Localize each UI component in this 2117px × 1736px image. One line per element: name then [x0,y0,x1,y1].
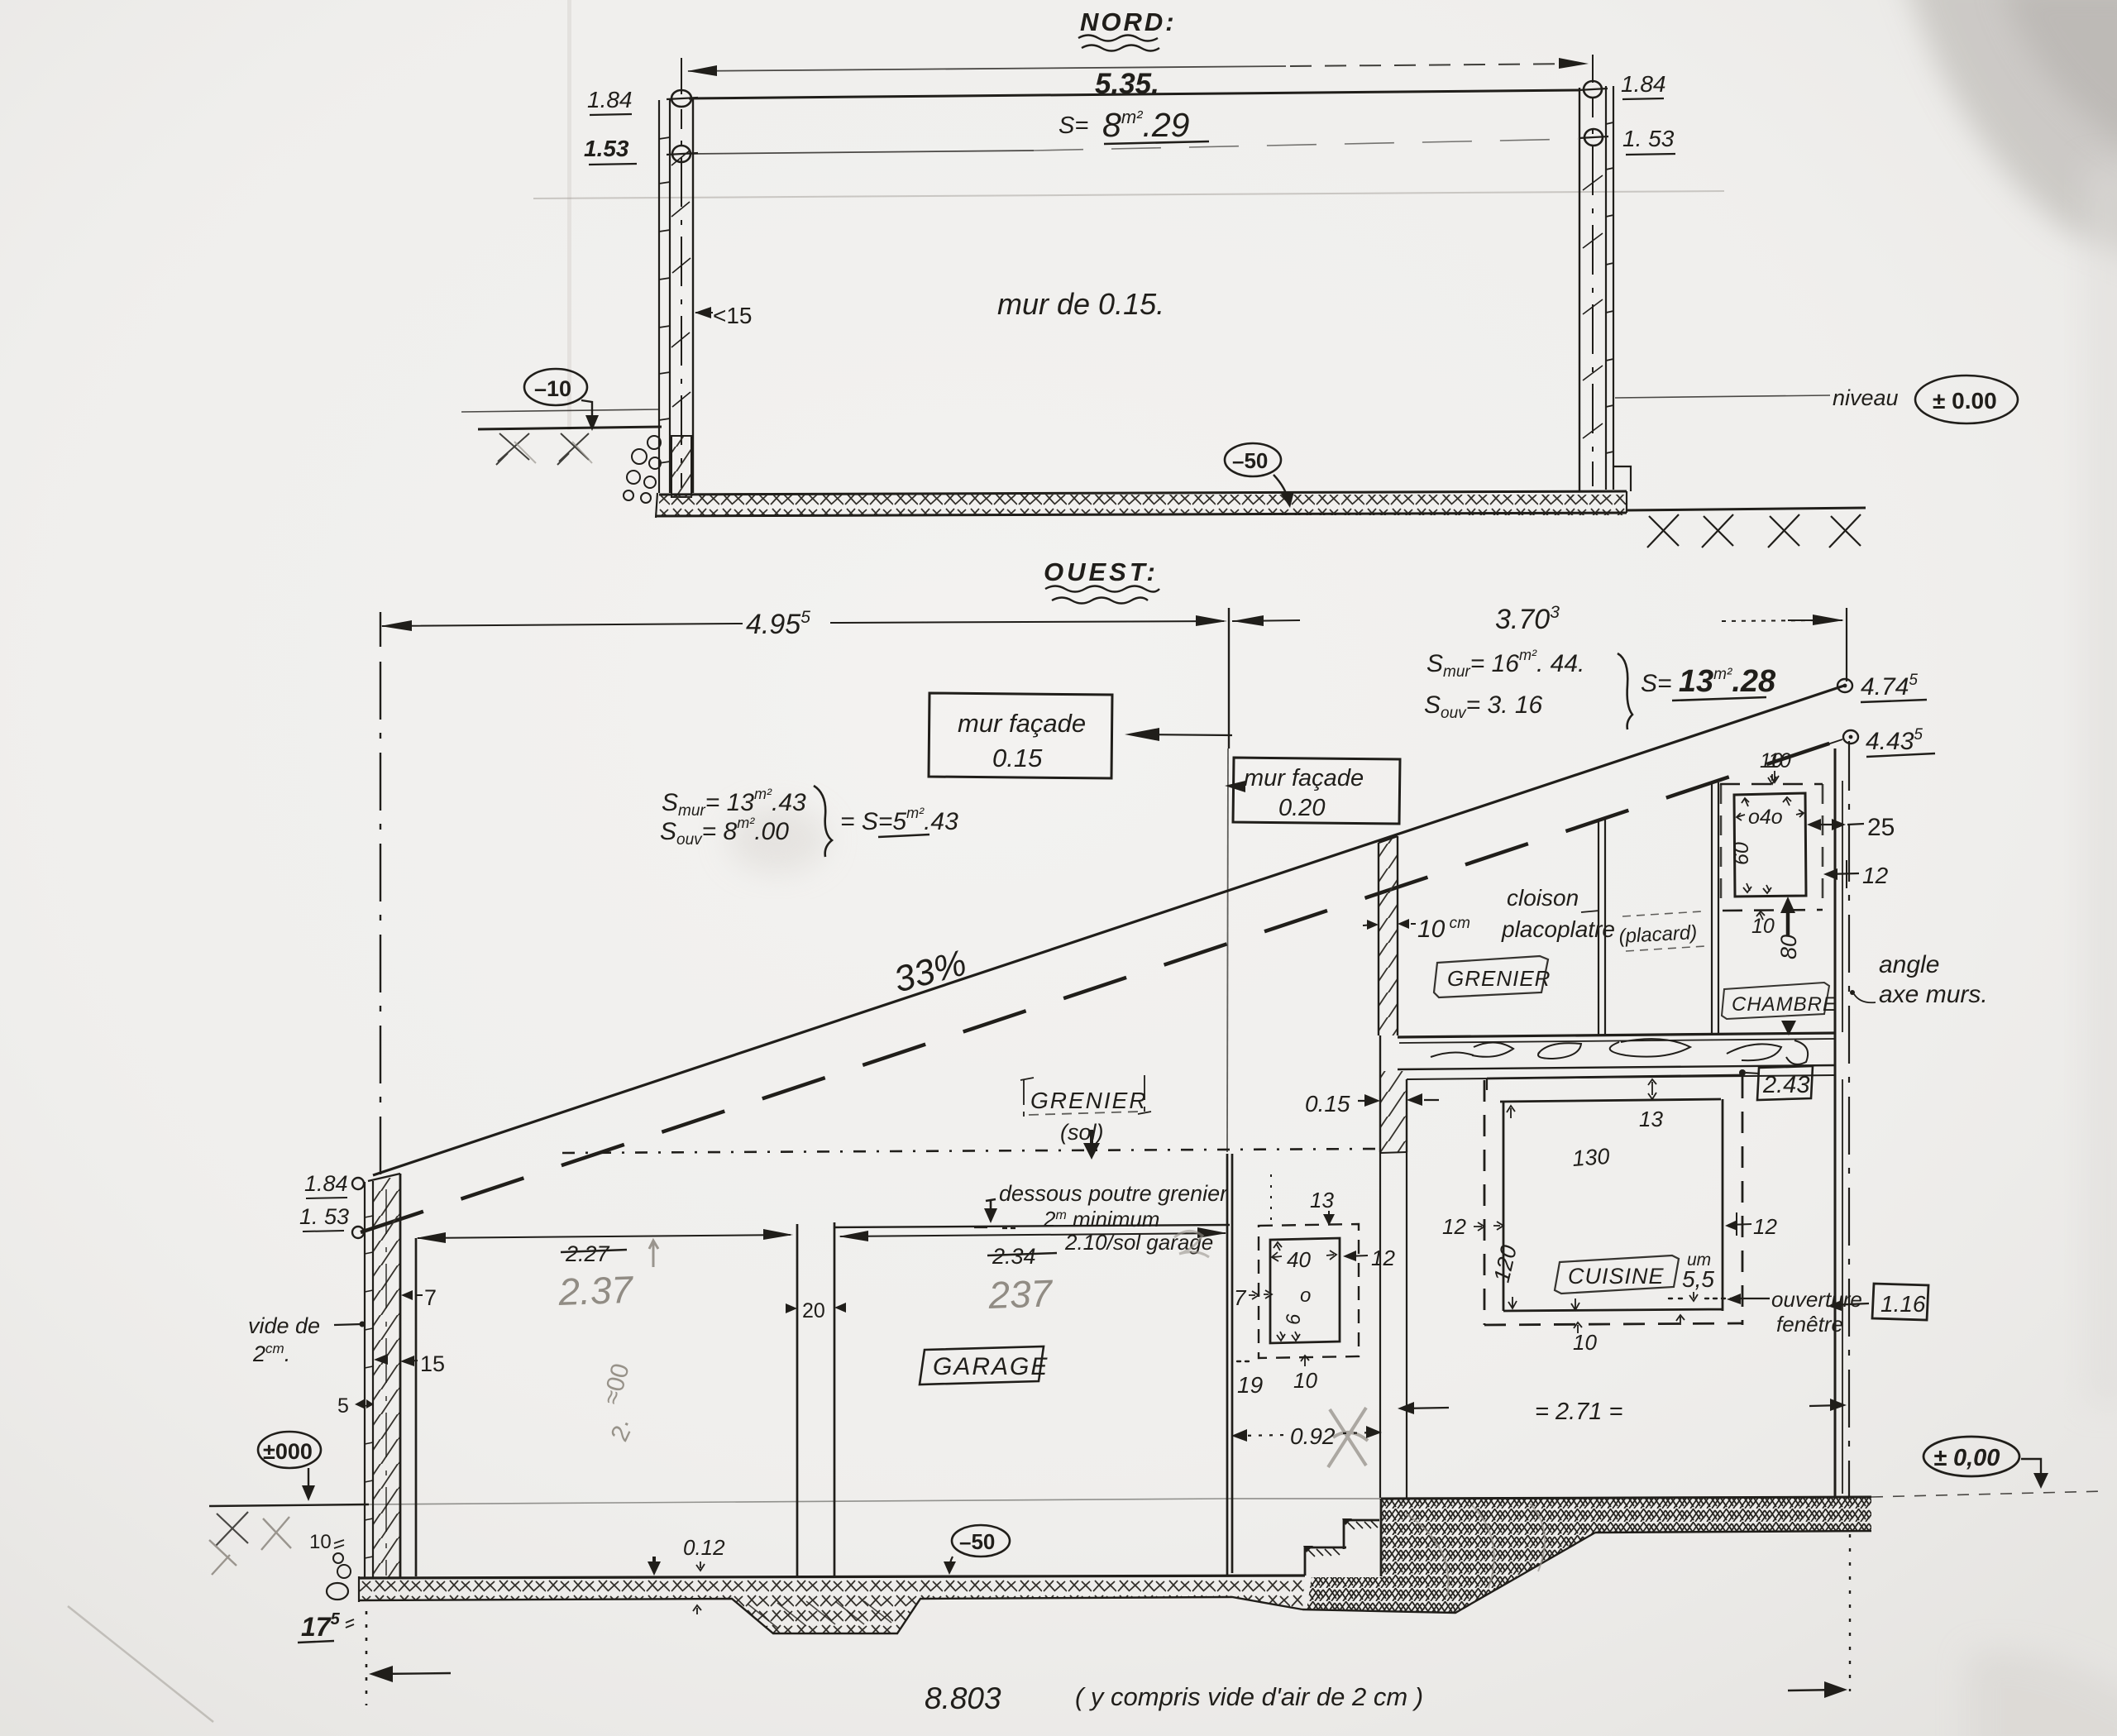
svg-text:7: 7 [424,1285,437,1310]
svg-text:GARAGE: GARAGE [933,1353,1049,1380]
svg-text:6: 6 [1283,1313,1305,1325]
svg-text:10: 10 [309,1531,332,1553]
svg-text:13: 13 [1639,1107,1663,1131]
svg-text:S=: S= [1058,112,1088,139]
svg-text:0.15: 0.15 [992,744,1043,772]
svg-text:= S=5m².43: = S=5m².43 [840,805,958,835]
svg-text:–50: –50 [1232,448,1268,473]
svg-text:CUISINE: CUISINE [1568,1264,1665,1289]
svg-text:mur façade: mur façade [958,709,1086,738]
svg-text:1.84: 1.84 [587,87,633,112]
svg-text:5: 5 [337,1394,349,1418]
svg-text:(placard): (placard) [1618,921,1698,948]
svg-text:2.43: 2.43 [1762,1072,1809,1098]
svg-text:mur façade: mur façade [1244,765,1364,791]
svg-text:237: 237 [987,1271,1054,1317]
svg-text:–50: –50 [959,1529,995,1554]
svg-text:ouverture: ouverture [1771,1287,1862,1312]
svg-text:axe murs.: axe murs. [1879,981,1988,1008]
svg-text:o4o: o4o [1748,806,1783,829]
svg-text:± 0,00: ± 0,00 [1933,1445,2000,1471]
svg-text:placoplatre: placoplatre [1501,916,1615,942]
svg-text:13: 13 [1310,1188,1334,1212]
svg-text:2.34: 2.34 [992,1244,1036,1269]
svg-text:cloison: cloison [1507,885,1579,911]
svg-text:OUEST:: OUEST: [1044,557,1159,586]
svg-text:12: 12 [1442,1214,1466,1239]
svg-text:12: 12 [1753,1214,1777,1239]
svg-text:± 0.00: ± 0.00 [1933,388,1997,414]
svg-text:o: o [1300,1284,1311,1307]
svg-text:0.20: 0.20 [1278,795,1325,821]
svg-text:19: 19 [1237,1372,1263,1398]
svg-text:<15: <15 [713,303,753,328]
svg-text:8m².29: 8m².29 [1102,106,1189,144]
svg-text:5,5: 5,5 [1682,1266,1714,1292]
svg-text:7: 7 [1234,1285,1247,1310]
svg-text:1. 53: 1. 53 [299,1204,349,1229]
svg-text:10: 10 [1573,1330,1597,1355]
svg-text:15: 15 [420,1351,445,1376]
svg-text:( y compris vide d'air de 2 cm: ( y compris vide d'air de 2 cm ) [1075,1682,1423,1711]
svg-text:80: 80 [1776,935,1801,959]
svg-text:GRENIER: GRENIER [1447,966,1551,991]
svg-text:0.12: 0.12 [683,1535,725,1560]
svg-text:130: 130 [1571,1144,1610,1171]
svg-text:dessous poutre grenier: dessous poutre grenier [999,1181,1228,1206]
svg-text:40: 40 [1287,1247,1311,1272]
svg-text:CHAMBRE: CHAMBRE [1732,993,1837,1016]
svg-text:0.15: 0.15 [1305,1091,1350,1117]
svg-text:0.92: 0.92 [1290,1423,1336,1449]
svg-text:2.37: 2.37 [557,1268,635,1313]
svg-text:1.53: 1.53 [584,136,629,161]
svg-text:= 2.71 =: = 2.71 = [1535,1399,1622,1425]
svg-text:20: 20 [802,1299,825,1322]
svg-text:–10: –10 [534,376,571,401]
svg-text:8.803: 8.803 [925,1681,1001,1715]
svg-text:vide de: vide de [248,1313,320,1338]
svg-text:25: 25 [1867,814,1895,841]
svg-text:±000: ±000 [263,1439,313,1464]
svg-text:angle: angle [1879,951,1939,978]
svg-text:1.84: 1.84 [1621,71,1666,97]
svg-text:GRENIER: GRENIER [1030,1088,1148,1113]
svg-text:niveau: niveau [1833,385,1899,410]
svg-text:60: 60 [1730,842,1753,865]
svg-text:1.16: 1.16 [1880,1291,1926,1317]
svg-text:12: 12 [1371,1246,1395,1270]
svg-text:(sol): (sol) [1060,1120,1104,1145]
svg-text:fenêtre: fenêtre [1776,1312,1843,1337]
svg-text:S= 13m².28: S= 13m².28 [1641,664,1776,699]
svg-text:2.27: 2.27 [565,1241,610,1266]
svg-text:1.84: 1.84 [304,1171,348,1196]
svg-text:10: 10 [1293,1368,1317,1393]
svg-text:mur de 0.15.: mur de 0.15. [997,287,1164,321]
svg-text:NORD:: NORD: [1080,7,1177,36]
svg-text:10: 10 [1760,749,1783,772]
svg-text:12: 12 [1862,863,1889,888]
svg-text:1. 53: 1. 53 [1622,126,1675,151]
